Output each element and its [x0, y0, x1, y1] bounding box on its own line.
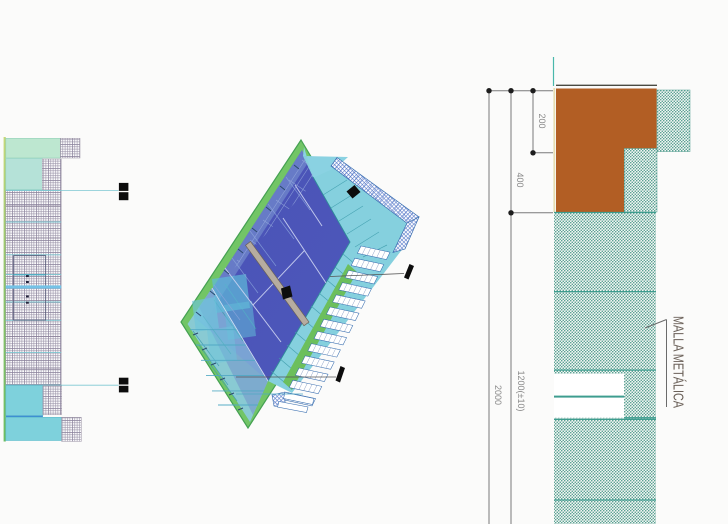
svg-text:MALLA METÁLICA: MALLA METÁLICA: [670, 316, 687, 408]
svg-text:1200(±10): 1200(±10): [516, 371, 526, 412]
svg-text:2000: 2000: [493, 385, 503, 405]
svg-text:200: 200: [537, 113, 547, 128]
svg-text:400: 400: [515, 172, 525, 187]
